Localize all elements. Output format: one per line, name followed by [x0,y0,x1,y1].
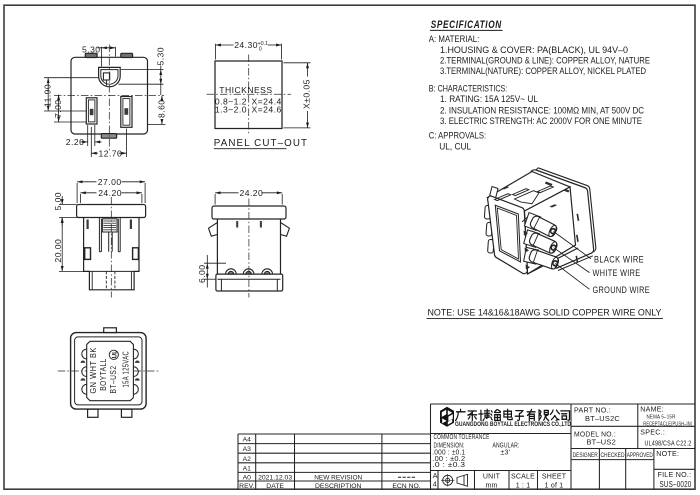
svg-text:5.30: 5.30 [156,47,166,66]
svg-text:BT–US2: BT–US2 [587,438,616,447]
svg-text:4: 4 [433,482,437,489]
svg-text:C: APPROVALS:: C: APPROVALS: [429,130,486,140]
svg-text:PANEL CUT–OUT: PANEL CUT–OUT [214,138,308,149]
svg-text:A1: A1 [243,465,252,472]
svg-text:UL, CUL: UL, CUL [439,141,471,151]
svg-text:27.00: 27.00 [98,177,122,187]
svg-text:.0 : ±0.3: .0 : ±0.3 [432,462,465,469]
svg-text:SUS–0020: SUS–0020 [660,480,692,489]
svg-text:REV.: REV. [239,483,254,490]
svg-text:X=24.6: X=24.6 [252,105,282,115]
svg-text:GUANGDONG BOYTALL ELECTRONICS: GUANGDONG BOYTALL ELECTRONICS CO.,LTD [455,421,571,428]
svg-text:5.00: 5.00 [53,192,63,211]
svg-text:SPEC.:: SPEC.: [640,428,665,436]
svg-text:2021.12.03: 2021.12.03 [258,475,292,482]
svg-text:A: MATERIAL:: A: MATERIAL: [429,34,480,44]
svg-text:NEMA 5–15R: NEMA 5–15R [647,415,676,421]
svg-text:2.TERMINAL(GROUND & LINE): CO: 2.TERMINAL(GROUND & LINE): COPPER ALLOY,… [440,56,650,66]
svg-text:RECEPTACLE(PUSH–IN): RECEPTACLE(PUSH–IN) [643,421,692,427]
svg-text:0: 0 [259,47,262,53]
svg-text:APPROVED: APPROVED [627,452,653,459]
svg-text:2.20: 2.20 [66,137,85,147]
svg-text:A: A [433,473,438,480]
svg-text:1.3~2.0: 1.3~2.0 [215,105,247,115]
svg-text:ECN NO.: ECN NO. [392,483,420,490]
svg-text:A3: A3 [243,446,252,453]
svg-text:A0: A0 [243,475,252,482]
svg-text:24.30: 24.30 [234,40,258,50]
svg-text:1 : 1: 1 : 1 [516,482,531,489]
svg-text:NOTE:: NOTE: [656,450,679,458]
svg-text:BLACK WIRE: BLACK WIRE [594,253,644,264]
svg-text:7.00: 7.00 [53,99,63,118]
svg-text:11.90: 11.90 [42,84,52,107]
svg-text:2. INSULATION RESISTANCE: 100: 2. INSULATION RESISTANCE: 100MΩ MIN, AT … [440,106,644,116]
svg-text:FILE NO.:: FILE NO.: [658,471,692,479]
svg-text:5.30: 5.30 [82,44,101,54]
svg-text:B: CHARACTERISTICS:: B: CHARACTERISTICS: [429,84,508,94]
svg-text:DESIGNER: DESIGNER [573,452,598,459]
svg-text:X±0.05: X±0.05 [301,79,311,109]
svg-text:±3': ±3' [501,449,511,456]
svg-text:ANGULAR:: ANGULAR: [493,442,520,449]
svg-text:3.TERMINAL(NATURE): COPPER AL: 3.TERMINAL(NATURE): COPPER ALLOY, NICKEL… [440,66,646,76]
svg-text:BT–US2: BT–US2 [108,366,118,394]
svg-text:SCALE: SCALE [511,474,535,481]
svg-text:BOYTALL: BOYTALL [98,358,108,391]
svg-text:1.HOUSING & COVER: PA(BLACK),: 1.HOUSING & COVER: PA(BLACK), UL 94V–0 [440,45,628,55]
svg-text:NEW REVISION: NEW REVISION [314,475,362,482]
svg-text:CHECKED: CHECKED [601,452,625,459]
svg-text:NAME:: NAME: [640,406,664,414]
svg-text:8.60: 8.60 [157,99,167,118]
svg-text:DATE: DATE [266,483,284,490]
svg-text:20.00: 20.00 [53,239,63,263]
svg-text:24.20: 24.20 [240,188,264,198]
svg-text:NOTE: USE 14&16&18AWG SOLID: NOTE: USE 14&16&18AWG SOLID COPPER WIRE … [428,308,663,319]
svg-text:6.00: 6.00 [197,264,207,283]
svg-text:DESCRIPTION: DESCRIPTION [315,483,362,490]
svg-text:1. RATING: 15A 125V~ UL: 1. RATING: 15A 125V~ UL [440,94,538,104]
svg-text:BT–US2C: BT–US2C [585,414,620,423]
svg-text:GN WHT BK: GN WHT BK [88,347,98,394]
svg-text:UL498/CSA C22.2: UL498/CSA C22.2 [645,438,692,447]
svg-text:COMMON TOLERANCE: COMMON TOLERANCE [434,434,490,441]
svg-text:12.70: 12.70 [99,149,123,159]
svg-text:1 of 1: 1 of 1 [545,482,564,489]
svg-text:SHEET: SHEET [542,474,567,481]
svg-text:UL: UL [112,350,118,358]
svg-text:WHITE WIRE: WHITE WIRE [593,267,641,278]
svg-text:DIMENSION:: DIMENSION: [434,442,465,449]
svg-text:24.20: 24.20 [98,188,122,198]
svg-text:THICKNESS: THICKNESS [219,85,272,95]
svg-text:A2: A2 [243,456,252,463]
svg-text:A4: A4 [243,437,252,444]
svg-text:mm: mm [485,482,497,489]
svg-text:GROUND WIRE: GROUND WIRE [593,284,651,295]
svg-text:SPECIFICATION: SPECIFICATION [431,19,502,31]
svg-text:15A 125VAC: 15A 125VAC [121,351,131,388]
svg-text:3. ELECTRIC STRENGTH: AC 2000: 3. ELECTRIC STRENGTH: AC 2000V FOR ONE M… [440,116,642,126]
svg-text:UNIT: UNIT [483,474,501,481]
